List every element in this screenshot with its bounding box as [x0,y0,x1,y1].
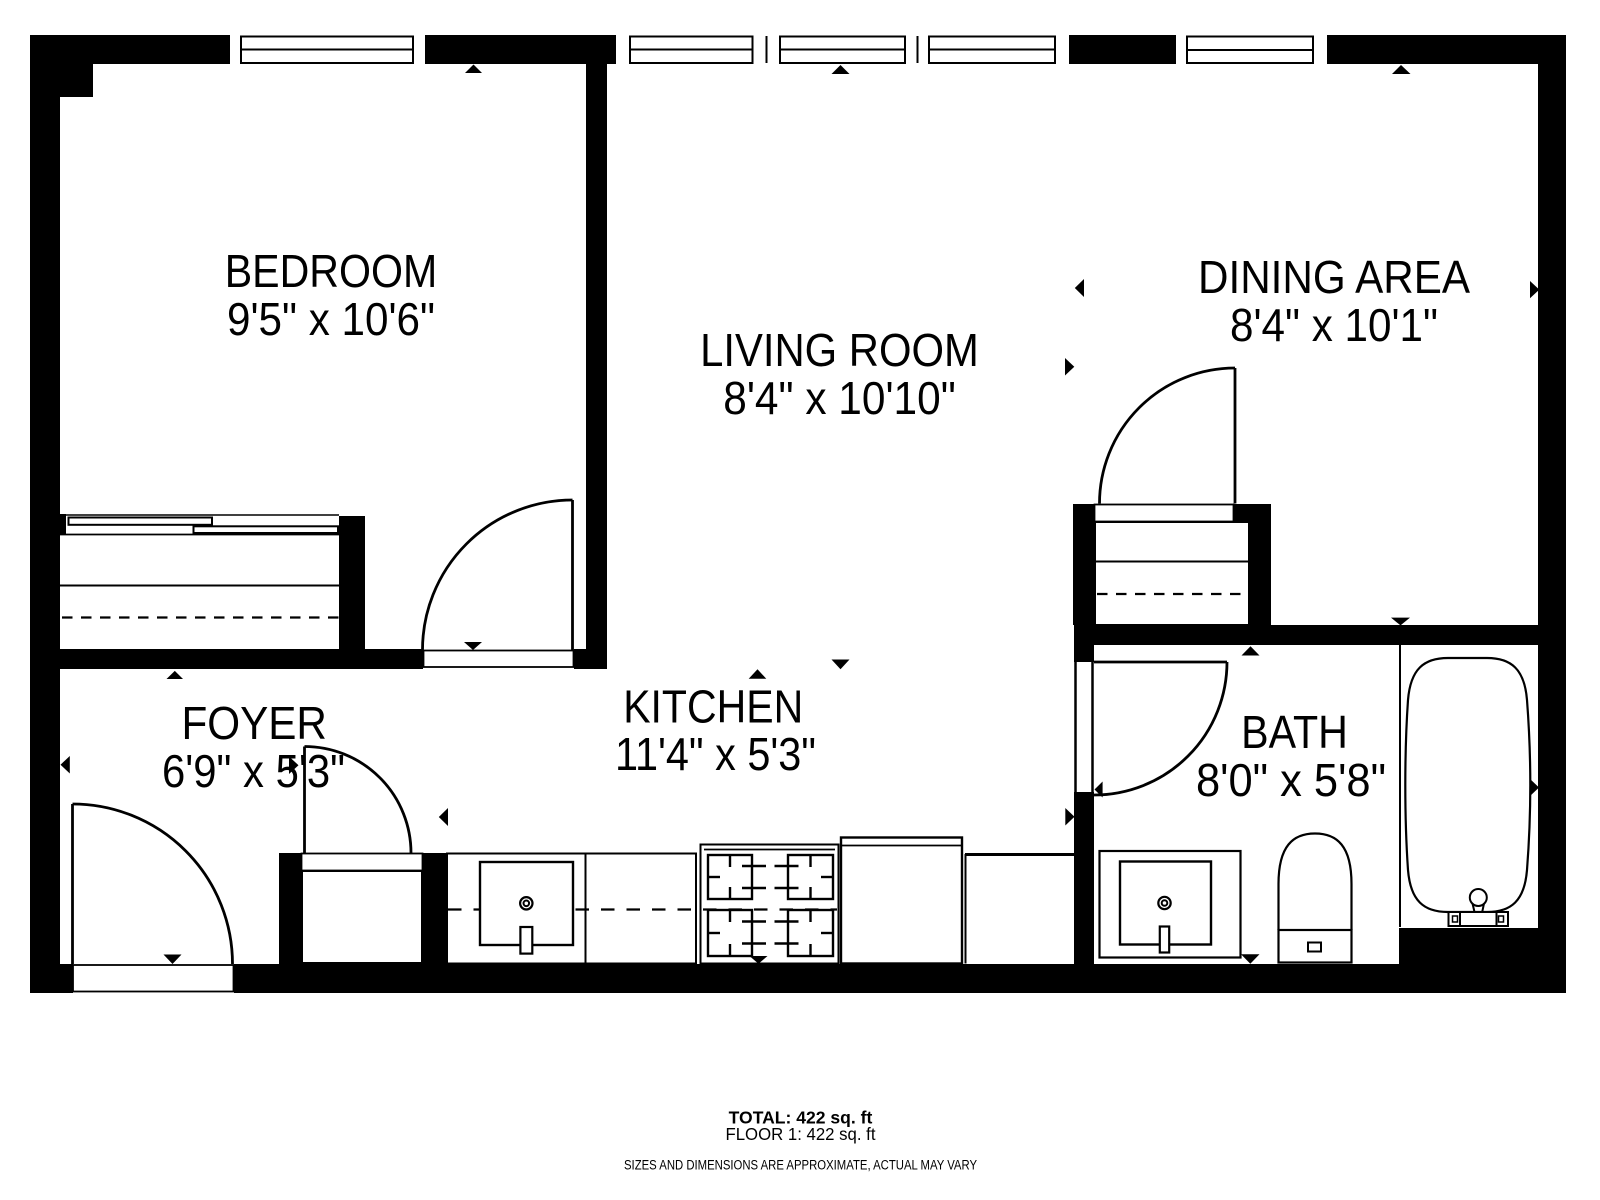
svg-text:FOYER: FOYER [181,697,327,749]
svg-text:FLOOR 1: 422 sq. ft: FLOOR 1: 422 sq. ft [726,1124,876,1144]
svg-text:11'4" x 5'3": 11'4" x 5'3" [615,728,816,780]
svg-text:SIZES AND DIMENSIONS ARE APPRO: SIZES AND DIMENSIONS ARE APPROXIMATE, AC… [624,1158,977,1173]
svg-text:9'5" x 10'6": 9'5" x 10'6" [227,293,435,345]
svg-text:8'4" x 10'1": 8'4" x 10'1" [1230,299,1438,351]
svg-text:8'0" x 5'8": 8'0" x 5'8" [1196,754,1386,806]
svg-text:8'4" x 10'10": 8'4" x 10'10" [723,372,956,424]
svg-text:BATH: BATH [1241,706,1348,758]
svg-text:LIVING ROOM: LIVING ROOM [700,324,979,376]
svg-text:BEDROOM: BEDROOM [225,245,438,297]
svg-text:6'9" x 5'3": 6'9" x 5'3" [162,745,345,797]
svg-text:DINING AREA: DINING AREA [1198,251,1470,303]
svg-text:KITCHEN: KITCHEN [623,681,803,733]
